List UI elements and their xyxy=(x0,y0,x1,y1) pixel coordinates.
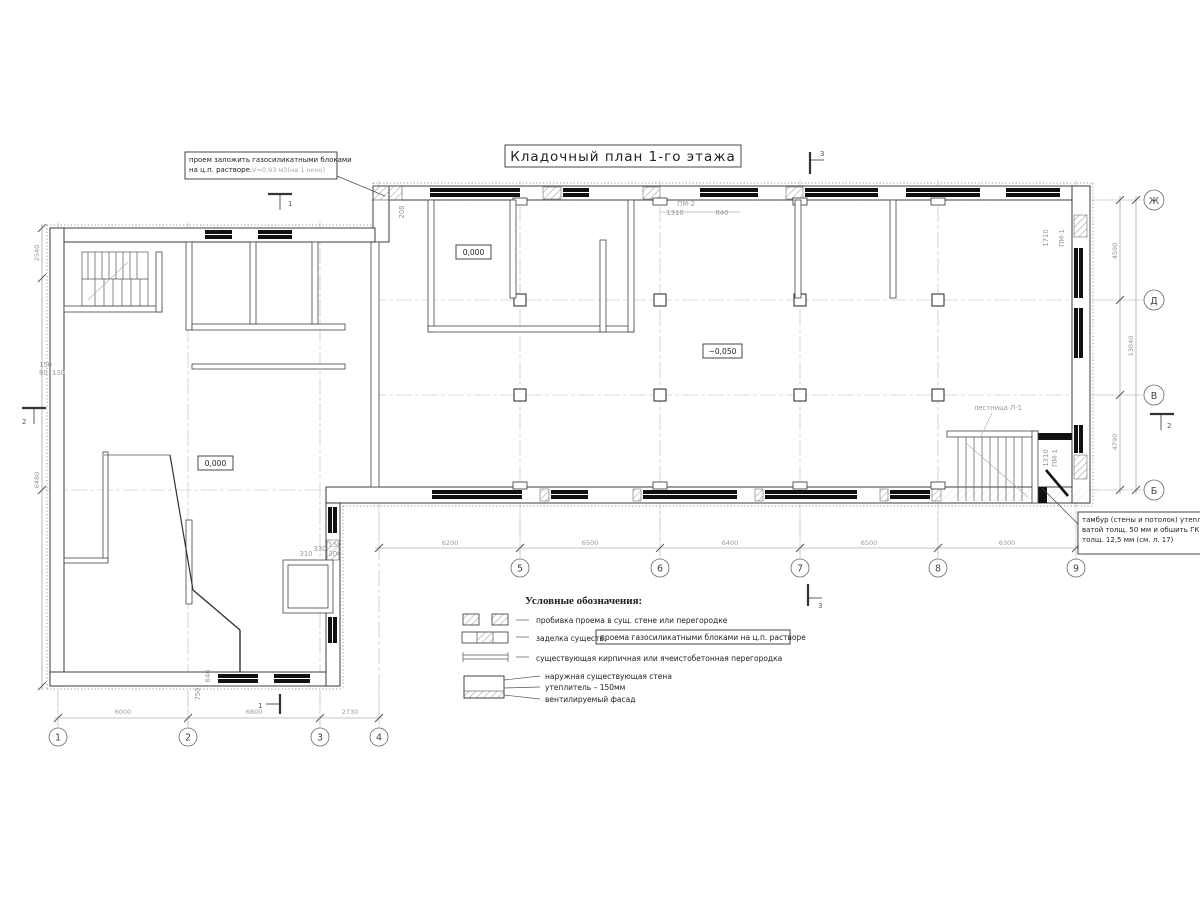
legend-row4-line1: наружная существующая стена xyxy=(545,672,672,681)
tambour-wall xyxy=(1038,433,1072,440)
dim-310: 310 xyxy=(300,550,313,558)
pm1-right-label: ПМ-1 xyxy=(1051,449,1059,467)
left-bldg-left-wall xyxy=(50,228,64,686)
legend-header: Условные обозначения: xyxy=(525,595,642,607)
dim-8-9: 6300 xyxy=(999,539,1016,547)
dim-zh-d: 4590 xyxy=(1111,243,1119,260)
pm1-right-dim: 1310 xyxy=(1042,449,1050,466)
dim-150: 150 xyxy=(39,361,52,369)
dim-300: 300 xyxy=(329,550,342,558)
axis-9: 9 xyxy=(1073,564,1079,575)
axis-zh: Ж xyxy=(1149,196,1160,207)
dim-right-total: 13040 xyxy=(1127,336,1135,357)
pm1-top-label: ПМ-1 xyxy=(1058,229,1066,247)
tambour-note-line1: тамбур (стены и потолок) утепли xyxy=(1082,516,1200,524)
wall-pilasters xyxy=(513,198,945,489)
legend: Условные обозначения: пробивка проема в … xyxy=(462,595,806,704)
axis-3: 3 xyxy=(317,733,323,744)
axis-7: 7 xyxy=(797,564,803,575)
section-2-right: 2 xyxy=(1167,422,1171,430)
pm2-label: ПМ-2 xyxy=(677,200,695,208)
legend-row2-boxed: проема газосиликатными блоками на ц.п. р… xyxy=(600,633,806,642)
axis-b: Б xyxy=(1151,486,1158,497)
dim-v-b: 4790 xyxy=(1111,434,1119,451)
axis-2: 2 xyxy=(185,733,191,744)
axis-6: 6 xyxy=(657,564,663,575)
dim-80: 80 xyxy=(39,369,48,377)
dim-3-4: 2730 xyxy=(342,708,359,716)
drawing-sheet: 6200 6500 6400 6500 6300 6000 6800 2730 … xyxy=(0,0,1200,900)
legend-row4-line3: вентилируемый фасад xyxy=(545,695,635,704)
section-3-bottom: 3 xyxy=(818,602,822,610)
grid-lines xyxy=(45,180,1141,726)
section-2-left: 2 xyxy=(22,418,26,426)
dim-640: 640 xyxy=(204,670,212,683)
opening-note-line2: на ц.п. растворе. xyxy=(189,166,252,174)
opening-note: проем заложить газосиликатными блоками н… xyxy=(185,152,385,196)
dim-6-7: 6400 xyxy=(722,539,739,547)
small-labels: ПМ-2 1310 840 ПМ-1 1710 ПМ-1 1310 лестни… xyxy=(39,200,1066,700)
opening-note-line2-gray: V=0,93 м3(на 1 окно) xyxy=(252,166,325,174)
section-1-top: 1 xyxy=(288,200,292,208)
axis-1: 1 xyxy=(55,733,61,744)
pm2-dim2: 840 xyxy=(716,209,729,217)
floor-plan-canvas: 6200 6500 6400 6500 6300 6000 6800 2730 … xyxy=(0,0,1200,900)
exterior-walls xyxy=(47,183,1093,689)
dim-150b: 150 xyxy=(329,541,342,549)
dim-4-5: 6200 xyxy=(442,539,459,547)
elev-0000-left: 0,000 xyxy=(205,459,227,468)
axis-4: 4 xyxy=(376,733,382,744)
pm1-top-dim: 1710 xyxy=(1042,229,1050,246)
tambour-note-line3: толщ. 12,5 мм (см. л. 17) xyxy=(1082,536,1174,544)
legend-row4-line2: утеплитель – 150мм xyxy=(545,683,625,692)
stair-left xyxy=(82,252,148,306)
elev-0000-long: 0,000 xyxy=(463,248,485,257)
dim-left-top: 2540 xyxy=(33,245,41,262)
axis-8: 8 xyxy=(935,564,941,575)
section-1-bottom: 1 xyxy=(258,702,262,710)
opening-note-line1: проем заложить газосиликатными блоками xyxy=(189,156,352,164)
legend-row3-text: существующая кирпичная или ячеистобетонн… xyxy=(536,654,782,663)
dim-750: 750 xyxy=(194,688,202,701)
axis-5: 5 xyxy=(517,564,523,575)
elevation-marks: 0,000 0,000 −0,050 xyxy=(198,245,742,470)
dim-7-8: 6500 xyxy=(861,539,878,547)
legend-row1-text: пробивка проема в сущ. стене или перегор… xyxy=(536,616,728,625)
stair-label: лестница Л-1 xyxy=(974,404,1022,412)
title-block: Кладочный план 1-го этажа xyxy=(505,145,741,167)
axis-v: В xyxy=(1151,391,1158,402)
dim-330: 330 xyxy=(314,545,327,553)
dim-5-6: 6500 xyxy=(582,539,599,547)
dim-208: 208 xyxy=(398,206,406,219)
dim-1-2: 6000 xyxy=(115,708,132,716)
axis-d: Д xyxy=(1150,296,1157,307)
dim-130: 130 xyxy=(52,369,65,377)
pm2-dim1: 1310 xyxy=(666,209,683,217)
infilled-openings xyxy=(327,187,1090,560)
tambour-note-line2: ватой толщ. 50 мм и обшить ГК xyxy=(1082,526,1199,534)
insulation-band xyxy=(47,183,1093,689)
drawing-title: Кладочный план 1-го этажа xyxy=(510,149,736,165)
section-3-top: 3 xyxy=(820,150,824,158)
junction-wall xyxy=(371,242,379,487)
dim-left-bottom: 6480 xyxy=(33,472,41,489)
elev-minus-0050: −0,050 xyxy=(709,347,737,356)
